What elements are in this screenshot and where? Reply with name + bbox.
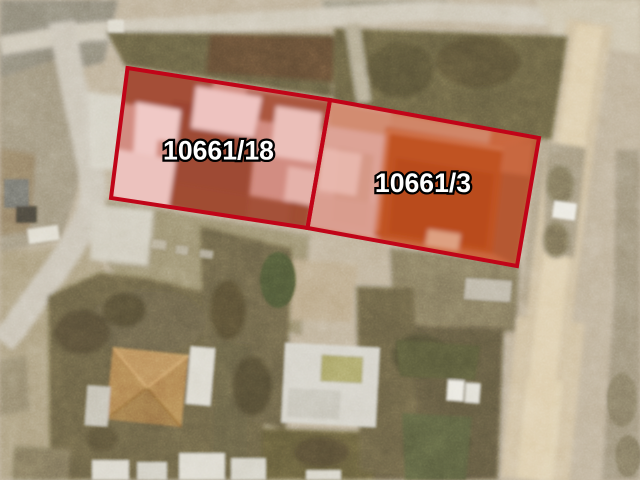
svg-text:10661/18: 10661/18 [163,136,274,166]
svg-text:10661/3: 10661/3 [375,168,471,198]
